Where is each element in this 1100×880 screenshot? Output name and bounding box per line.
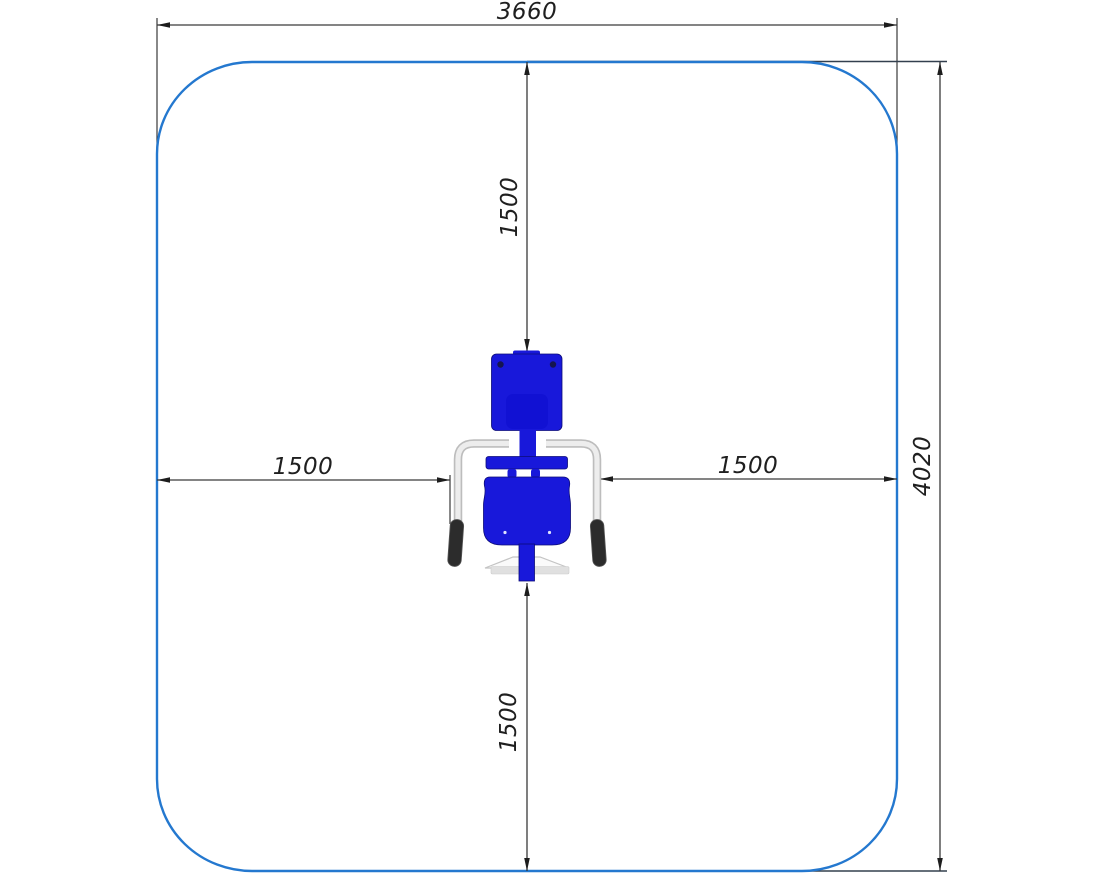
arrow-right-icon	[437, 477, 450, 483]
arrow-down-icon	[524, 858, 530, 871]
dimension-label-offset-top: 1500	[497, 177, 523, 238]
safety-zone-plan: 3660 4020 1500 1500 1500 1500	[0, 0, 1100, 880]
arrow-right-icon	[884, 22, 897, 28]
equipment-top-view	[447, 351, 606, 582]
dimension-lines	[157, 25, 940, 871]
frame-post	[519, 544, 535, 581]
dimension-labels: 3660 4020 1500 1500 1500 1500	[273, 0, 936, 752]
seat-bolt-left	[503, 531, 506, 534]
backrest-shading	[506, 394, 548, 429]
dimension-label-offset-bottom: 1500	[496, 692, 522, 753]
grip-left	[447, 519, 464, 567]
arrow-down-icon	[937, 858, 943, 871]
arrow-up-icon	[524, 583, 530, 596]
crossbar	[486, 457, 568, 470]
seat-bolt-right	[548, 531, 551, 534]
backrest-bolt-left	[497, 361, 503, 367]
arrow-up-icon	[524, 62, 530, 75]
dimension-label-offset-left: 1500	[273, 454, 334, 480]
technical-drawing-canvas: 3660 4020 1500 1500 1500 1500	[0, 0, 1100, 880]
seat	[484, 477, 571, 545]
dimension-label-offset-right: 1500	[718, 453, 779, 479]
dimension-label-width: 3660	[497, 0, 558, 25]
arrow-left-icon	[157, 477, 170, 483]
arrow-right-icon	[884, 476, 897, 482]
backrest-bolt-right	[550, 361, 556, 367]
arrow-up-icon	[937, 62, 943, 75]
arrow-down-icon	[524, 339, 530, 352]
arrow-left-icon	[600, 476, 613, 482]
dimension-label-height: 4020	[910, 436, 936, 497]
grip-right	[590, 519, 607, 567]
arrow-left-icon	[157, 22, 170, 28]
